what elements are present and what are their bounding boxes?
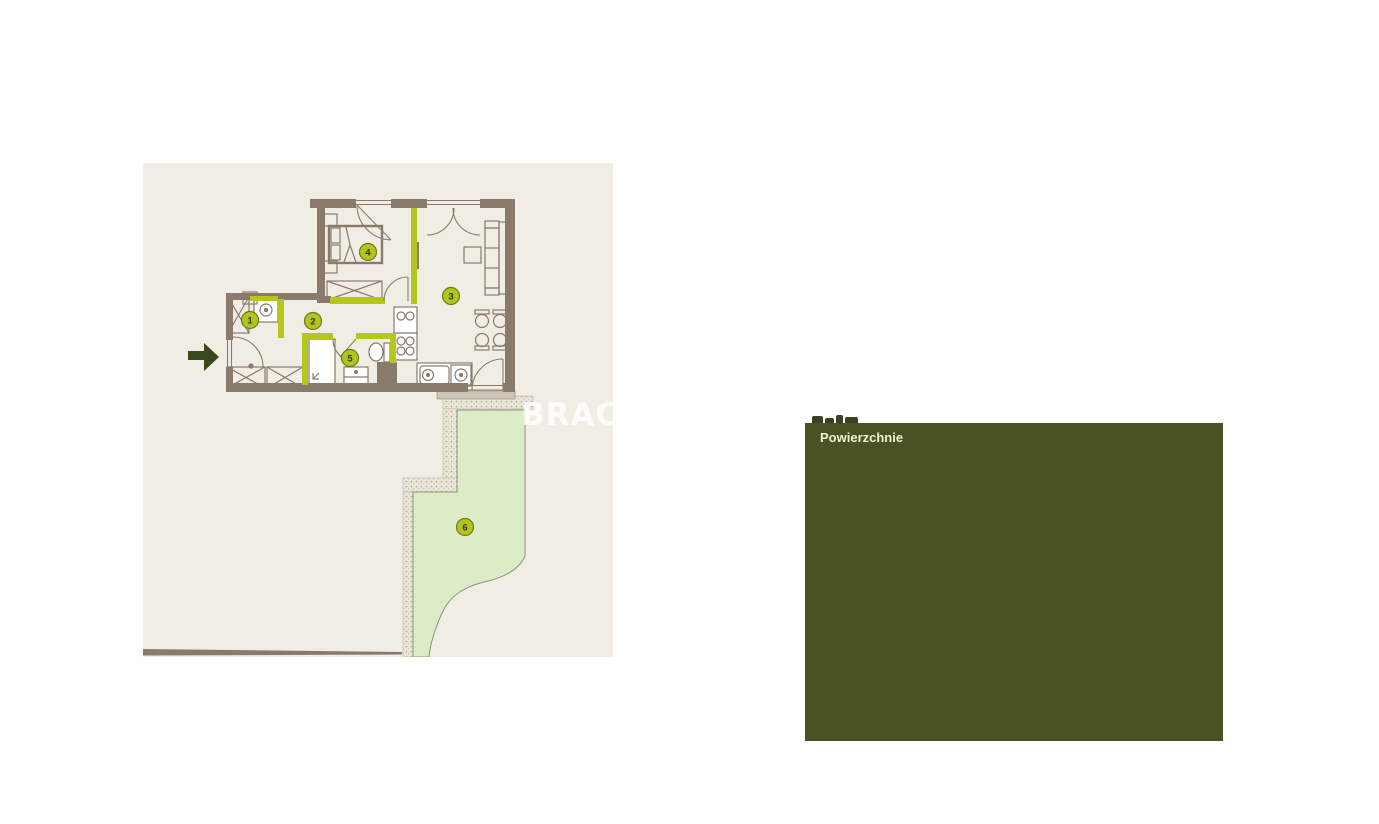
marker-1: 1 (242, 312, 259, 329)
terrace-slab (437, 391, 515, 399)
svg-text:6: 6 (462, 522, 467, 533)
floorplan-image: 1 2 3 4 5 (143, 163, 613, 657)
marker-2: 2 (305, 313, 322, 330)
page: 1 2 3 4 5 (0, 0, 1379, 824)
marker-3: 3 (443, 288, 460, 305)
marker-6: 6 (457, 519, 474, 536)
svg-text:3: 3 (448, 291, 453, 302)
svg-text:4: 4 (365, 247, 371, 258)
svg-text:1: 1 (247, 315, 253, 326)
marker-4: 4 (360, 244, 377, 261)
marker-5: 5 (342, 350, 359, 367)
shower-icon (309, 339, 335, 384)
door-stop-dot (249, 364, 253, 368)
areas-panel: Powierzchnie 1 wc 1,69 m² 2 przedpokój 1… (805, 423, 1223, 741)
svg-text:2: 2 (310, 316, 315, 327)
toilet-icon (369, 343, 390, 362)
watermark-text: BRAC (521, 400, 613, 431)
cropped-logo-remnant (812, 414, 872, 423)
svg-text:5: 5 (347, 353, 353, 364)
panel-title: Powierzchnie (820, 430, 903, 445)
